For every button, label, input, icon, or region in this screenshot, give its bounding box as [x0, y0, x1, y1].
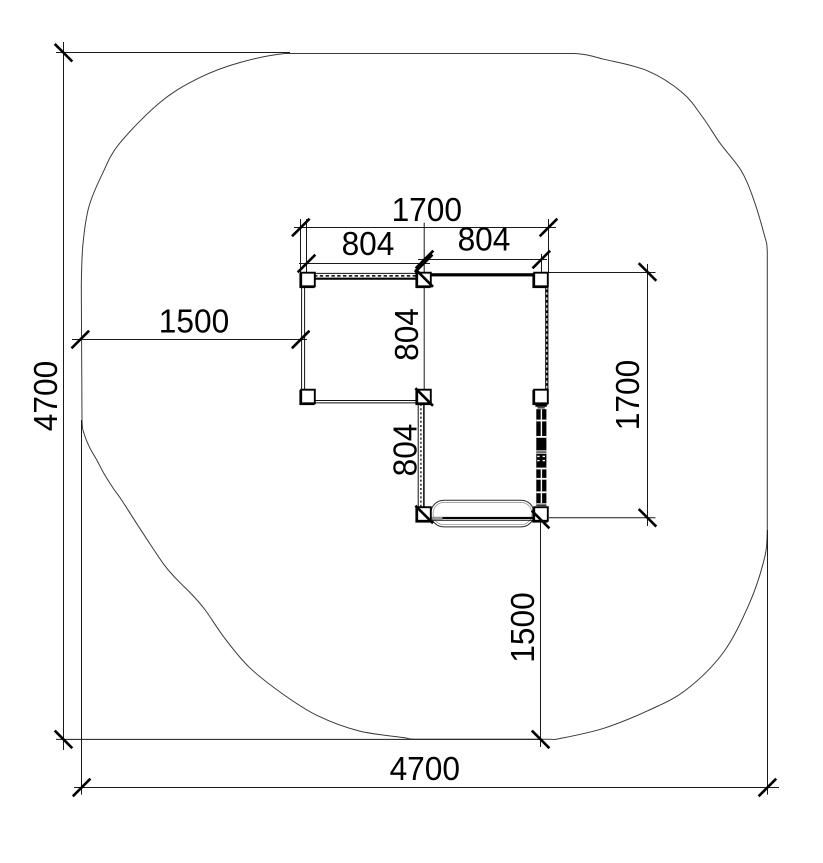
svg-text:804: 804 [342, 225, 395, 262]
svg-text:4700: 4700 [27, 361, 64, 431]
svg-text:1700: 1700 [392, 191, 462, 228]
svg-text:804: 804 [387, 424, 424, 477]
svg-text:804: 804 [388, 308, 425, 361]
svg-text:804: 804 [458, 221, 511, 258]
svg-text:1500: 1500 [504, 592, 541, 662]
svg-text:1700: 1700 [609, 360, 646, 430]
svg-text:1500: 1500 [159, 303, 229, 340]
svg-text:4700: 4700 [390, 751, 460, 788]
